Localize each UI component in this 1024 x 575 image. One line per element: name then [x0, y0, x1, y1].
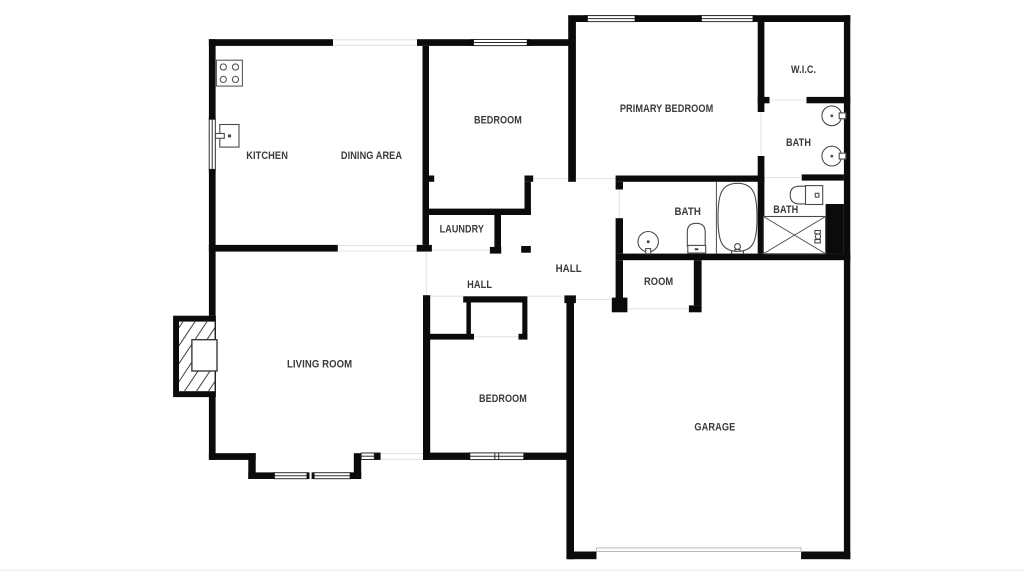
- svg-text:BEDROOM: BEDROOM: [479, 393, 527, 405]
- svg-text:BATH: BATH: [786, 137, 811, 149]
- svg-text:BATH: BATH: [674, 206, 701, 218]
- svg-text:W.I.C.: W.I.C.: [791, 64, 816, 76]
- svg-text:PRIMARY BEDROOM: PRIMARY BEDROOM: [620, 103, 714, 115]
- svg-text:DINING AREA: DINING AREA: [341, 150, 402, 162]
- svg-text:HALL: HALL: [556, 263, 583, 275]
- svg-text:BEDROOM: BEDROOM: [474, 115, 522, 127]
- svg-text:BATH: BATH: [773, 204, 798, 216]
- svg-text:ROOM: ROOM: [644, 276, 673, 288]
- svg-text:KITCHEN: KITCHEN: [246, 150, 288, 162]
- svg-text:HALL: HALL: [467, 279, 492, 291]
- svg-text:LAUNDRY: LAUNDRY: [440, 224, 484, 236]
- svg-text:LIVING ROOM: LIVING ROOM: [287, 358, 352, 370]
- svg-text:GARAGE: GARAGE: [694, 421, 735, 433]
